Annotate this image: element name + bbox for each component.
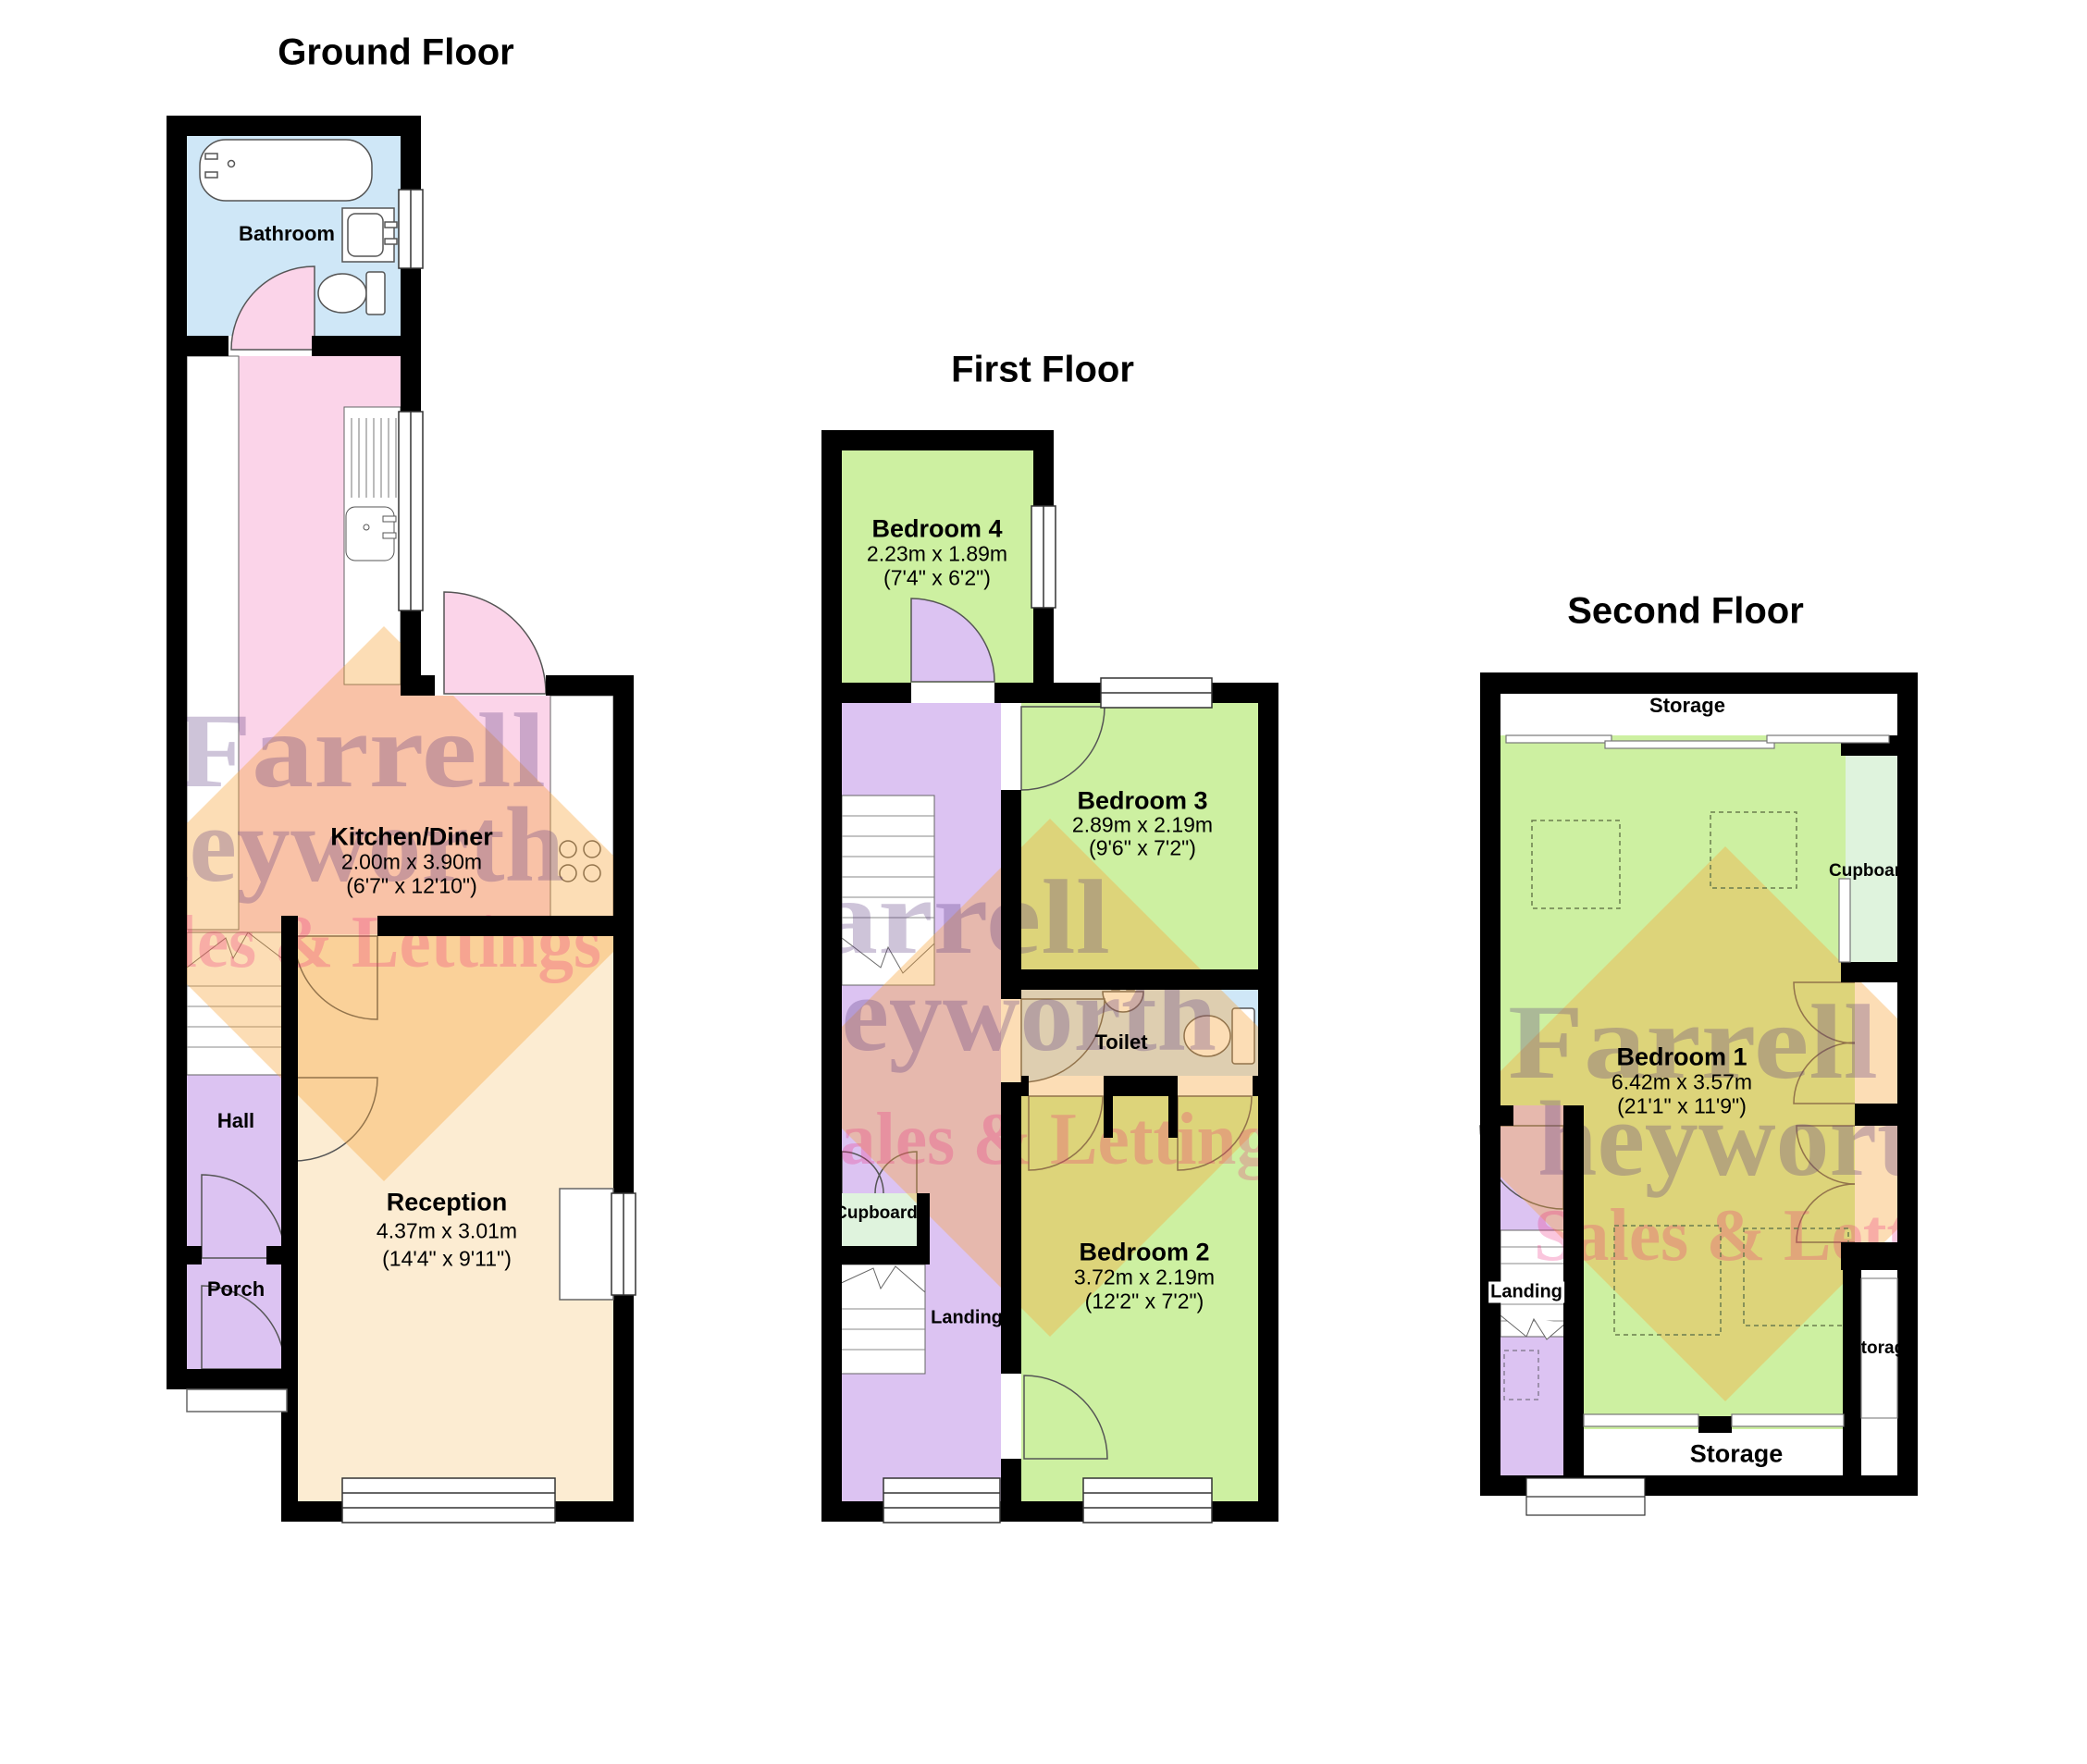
bedroom4-label: Bedroom 4 — [871, 515, 1002, 544]
partition-line — [1605, 741, 1774, 748]
landing-label: Landing — [1488, 1282, 1564, 1303]
watermark-text: Sales & Lettings — [800, 1099, 1300, 1180]
cupboard-door-line — [1839, 879, 1850, 962]
first-floor-plan: Farrell heyworth Sales & Lettings — [740, 430, 1309, 1523]
ground-floor-plan: Farrell heyworth Sales & Lettings — [102, 116, 661, 1523]
bay-recess — [560, 1189, 613, 1300]
toilet-label: Toilet — [1094, 1030, 1147, 1055]
porch-label: Porch — [207, 1277, 265, 1301]
reception-label: Reception — [387, 1189, 508, 1217]
bedroom2-label: Bedroom 2 — [1079, 1239, 1209, 1267]
bedroom1-dims-ft: (21'1" x 11'9") — [1617, 1094, 1747, 1119]
bedroom3-label: Bedroom 3 — [1077, 787, 1207, 816]
bath-drain-icon — [228, 161, 235, 167]
kitchen-label: Kitchen/Diner — [330, 823, 493, 852]
reception-dims-ft: (14'4" x 9'11") — [382, 1247, 512, 1272]
sink-drain-icon — [364, 524, 369, 530]
bedroom3-dims-m: 2.89m x 2.19m — [1072, 813, 1213, 838]
second-floor-title: Second Floor — [1567, 591, 1804, 633]
toilet-icon — [318, 274, 366, 313]
floorplan-canvas: Farrell heyworth Sales & Lettings — [0, 0, 2087, 1764]
sink-tap-icon — [383, 516, 396, 522]
bedroom2-dims-m: 3.72m x 2.19m — [1074, 1265, 1215, 1290]
hall-label: Hall — [217, 1109, 254, 1133]
sink-basin-icon — [348, 214, 383, 256]
storage-bottom-label: Storage — [1690, 1440, 1784, 1469]
storage-right-label-clipped: Storage — [1861, 1338, 1898, 1361]
ground-floor-title: Ground Floor — [278, 32, 514, 74]
bedroom4-dims-m: 2.23m x 1.89m — [867, 542, 1007, 567]
doorstep — [187, 1389, 287, 1412]
sink-tap-icon — [385, 239, 397, 244]
landing-label: Landing — [931, 1308, 1003, 1329]
bedroom1-label: Bedroom 1 — [1616, 1043, 1747, 1072]
partition-line — [1506, 735, 1612, 743]
sink-tap-icon — [385, 222, 397, 228]
watermark-text: Sales & Lettings — [1534, 1195, 2033, 1277]
cupboard-label: Cupboard — [834, 1203, 918, 1224]
storage-right-label: Storage — [1861, 1338, 1898, 1359]
storage-top-label: Storage — [1649, 694, 1725, 718]
cupboard-label: Cupboard — [1829, 861, 1897, 882]
partition-line — [1767, 735, 1889, 743]
bathtub-icon — [200, 140, 372, 201]
bedroom2-dims-ft: (12'2" x 7'2") — [1085, 1289, 1204, 1314]
window-icon — [342, 1478, 555, 1523]
cupboard-label-clipped: Cupboard — [1829, 861, 1897, 885]
bath-tap-icon — [205, 154, 217, 159]
window-icon — [883, 1478, 1000, 1523]
first-floor-title: First Floor — [951, 350, 1134, 391]
window-icon — [1083, 1478, 1212, 1523]
kitchen-dims-m: 2.00m x 3.90m — [341, 850, 482, 875]
bathroom-label: Bathroom — [239, 222, 335, 246]
kitchen-door-icon — [444, 592, 546, 694]
kitchen-dims-ft: (6'7" x 12'10") — [346, 874, 476, 899]
bedroom1-dims-m: 6.42m x 3.57m — [1612, 1070, 1752, 1095]
sink-tap-icon — [383, 533, 396, 538]
partition-line — [1732, 1414, 1844, 1426]
bath-tap-icon — [205, 172, 217, 178]
reception-dims-m: 4.37m x 3.01m — [377, 1219, 517, 1244]
toilet-cistern-icon — [366, 272, 385, 315]
bedroom3-dims-ft: (9'6" x 7'2") — [1089, 836, 1196, 861]
cupboard-area — [1846, 756, 1897, 962]
partition-line — [1584, 1414, 1698, 1426]
bedroom4-dims-ft: (7'4" x 6'2") — [883, 566, 991, 591]
